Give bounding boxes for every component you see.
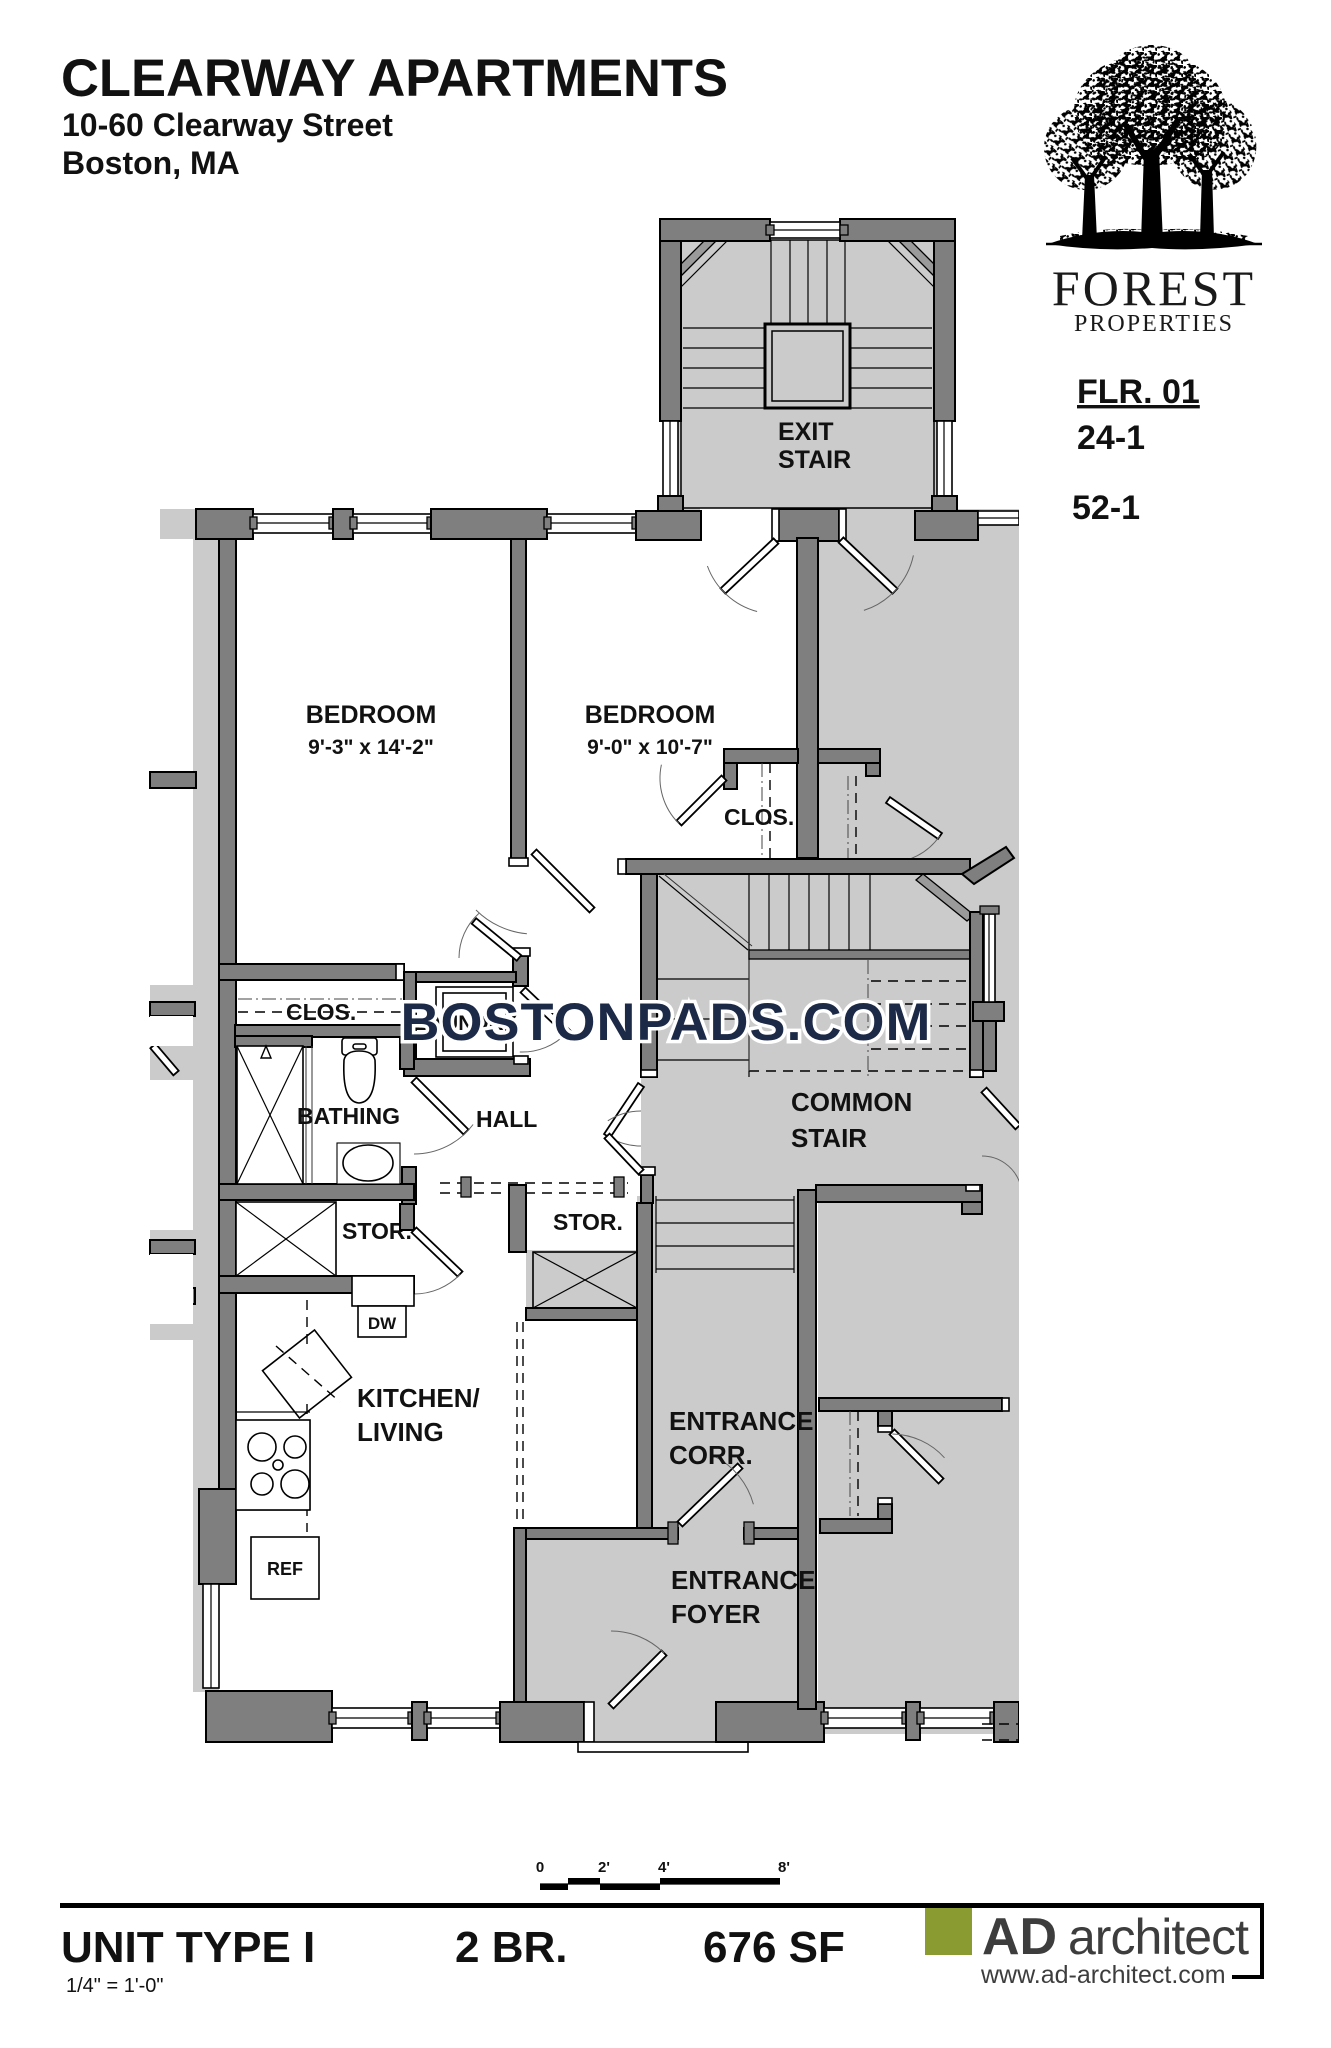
svg-text:STAIR: STAIR xyxy=(791,1123,867,1153)
svg-text:Boston, MA: Boston, MA xyxy=(62,145,240,181)
svg-text:ENTRANCE: ENTRANCE xyxy=(671,1565,815,1595)
svg-text:UNIT TYPE I: UNIT TYPE I xyxy=(61,1923,315,1972)
svg-text:9'-3" x 14'-2": 9'-3" x 14'-2" xyxy=(308,736,434,759)
svg-text:BOSTONPADS.COM: BOSTONPADS.COM xyxy=(401,993,932,1052)
svg-text:ENTRANCE: ENTRANCE xyxy=(669,1406,813,1436)
svg-text:52-1: 52-1 xyxy=(1072,489,1140,527)
svg-text:DW: DW xyxy=(368,1314,397,1333)
svg-text:10-60 Clearway Street: 10-60 Clearway Street xyxy=(62,107,393,143)
svg-text:8': 8' xyxy=(778,1859,790,1876)
svg-text:STOR.: STOR. xyxy=(553,1209,623,1235)
svg-text:CLEARWAY APARTMENTS: CLEARWAY APARTMENTS xyxy=(61,49,728,108)
svg-text:PROPERTIES: PROPERTIES xyxy=(1074,311,1234,337)
svg-text:BATHING: BATHING xyxy=(297,1103,400,1129)
svg-text:www.ad-architect.com: www.ad-architect.com xyxy=(980,1961,1226,1989)
svg-text:0: 0 xyxy=(536,1859,544,1876)
svg-text:HALL: HALL xyxy=(476,1106,537,1132)
svg-text:COMMON: COMMON xyxy=(791,1087,912,1117)
svg-text:4': 4' xyxy=(658,1859,670,1876)
svg-text:24-1: 24-1 xyxy=(1077,419,1145,457)
svg-text:REF: REF xyxy=(267,1559,303,1579)
svg-text:EXIT: EXIT xyxy=(778,418,834,446)
svg-text:CLOS.: CLOS. xyxy=(724,804,794,830)
svg-text:676 SF: 676 SF xyxy=(703,1923,845,1972)
svg-text:CORR.: CORR. xyxy=(669,1440,753,1470)
svg-text:FLR. 01: FLR. 01 xyxy=(1077,373,1200,411)
svg-text:9'-0" x 10'-7": 9'-0" x 10'-7" xyxy=(587,736,713,759)
svg-text:2 BR.: 2 BR. xyxy=(455,1923,567,1972)
svg-text:STAIR: STAIR xyxy=(778,446,851,474)
svg-text:2': 2' xyxy=(598,1859,610,1876)
svg-text:AD: AD xyxy=(982,1908,1057,1966)
svg-text:BEDROOM: BEDROOM xyxy=(585,701,716,729)
svg-text:FOYER: FOYER xyxy=(671,1599,761,1629)
svg-text:1/4" = 1'-0": 1/4" = 1'-0" xyxy=(66,1975,164,1997)
svg-text:architect: architect xyxy=(1068,1909,1249,1965)
svg-text:KITCHEN/: KITCHEN/ xyxy=(357,1383,480,1413)
svg-text:BEDROOM: BEDROOM xyxy=(306,701,437,729)
svg-text:LIVING: LIVING xyxy=(357,1417,444,1447)
svg-text:CLOS.: CLOS. xyxy=(286,999,356,1025)
svg-text:FOREST: FOREST xyxy=(1052,260,1256,316)
